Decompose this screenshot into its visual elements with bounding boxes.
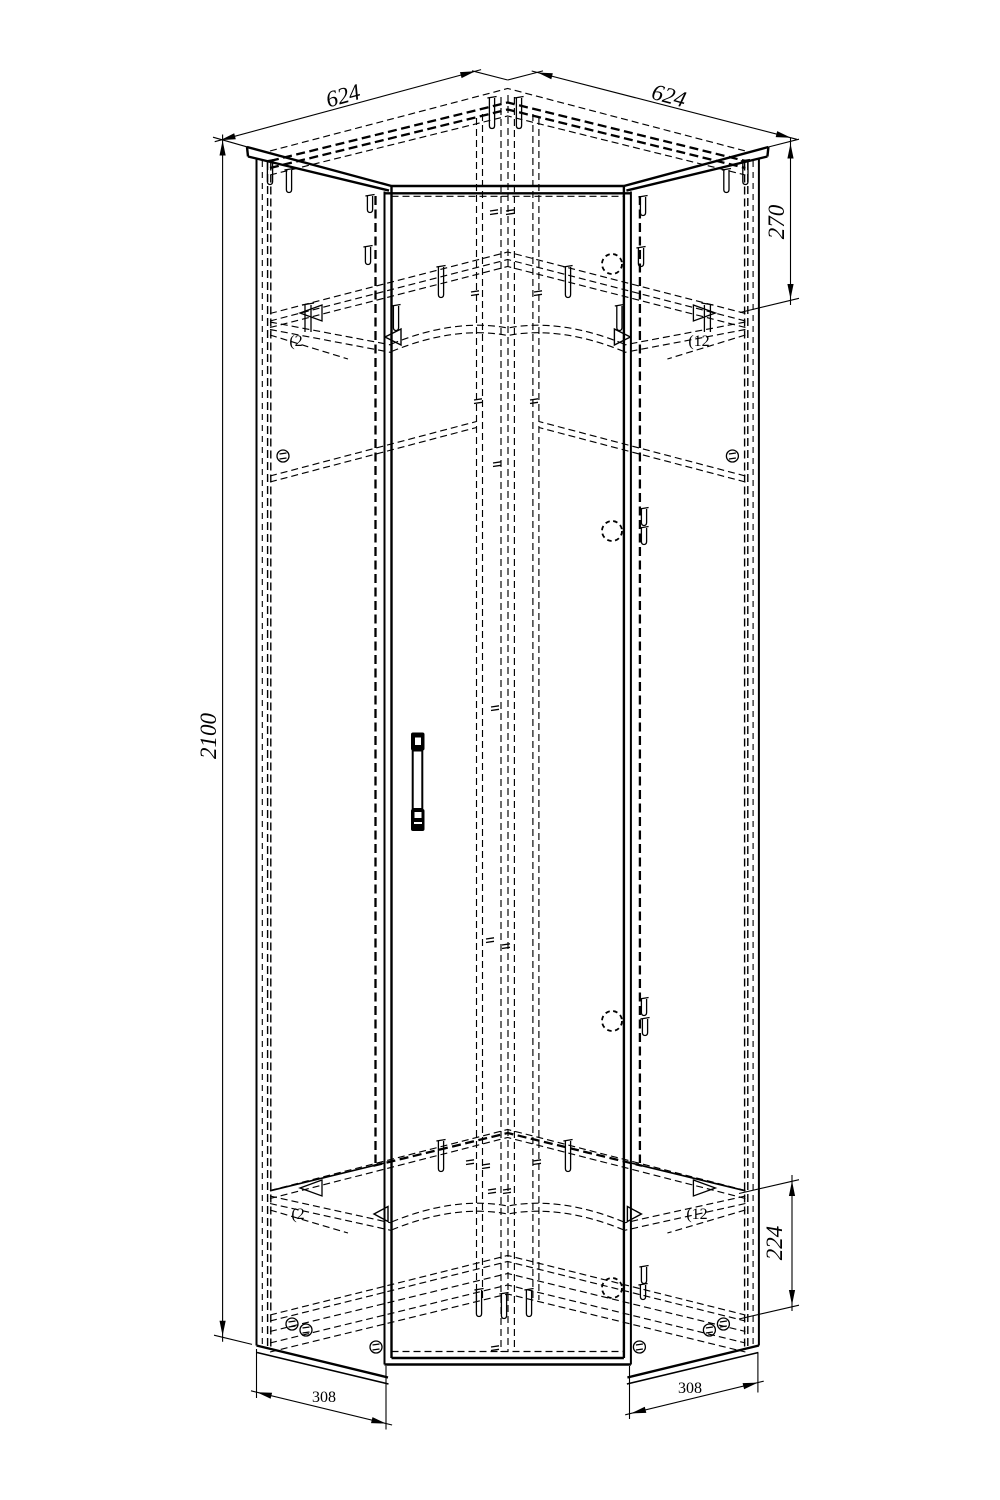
svg-text:(2: (2 [289, 333, 302, 350]
svg-text:2100: 2100 [196, 713, 221, 760]
svg-text:224: 224 [762, 1226, 787, 1261]
svg-text:270: 270 [764, 204, 789, 239]
svg-text:(12: (12 [686, 1206, 707, 1223]
svg-text:(2: (2 [291, 1206, 304, 1223]
svg-text:308: 308 [678, 1380, 702, 1397]
svg-text:308: 308 [312, 1389, 336, 1406]
svg-text:(12: (12 [688, 333, 709, 350]
